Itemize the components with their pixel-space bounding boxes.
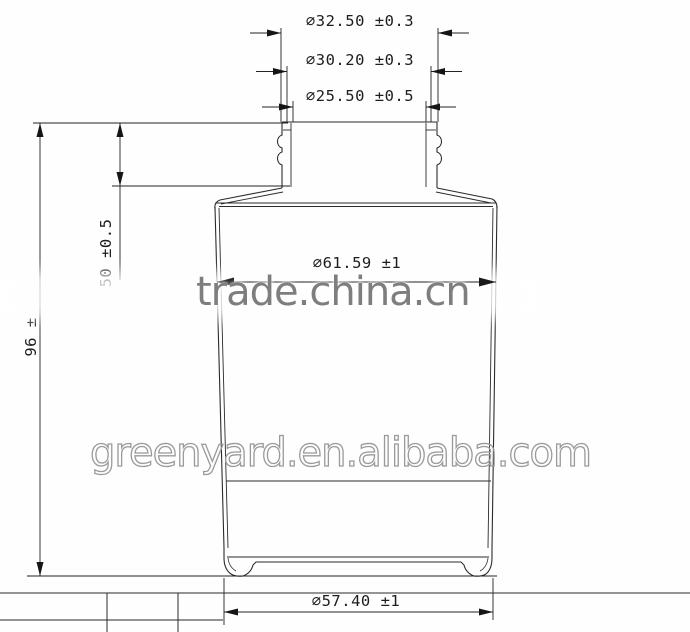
- drawing-canvas: ∅32.50 ±0.3 ∅30.20 ±0.3 ∅25.50 ±0.5 ∅57.…: [0, 0, 690, 632]
- watermark-trade-china: trade.china.cn: [196, 269, 470, 315]
- body-dimension-overlay: ∅61.59 ±1: [0, 0, 690, 632]
- watermark-greenyard-alibaba: greenyard.en.alibaba.com: [90, 430, 591, 476]
